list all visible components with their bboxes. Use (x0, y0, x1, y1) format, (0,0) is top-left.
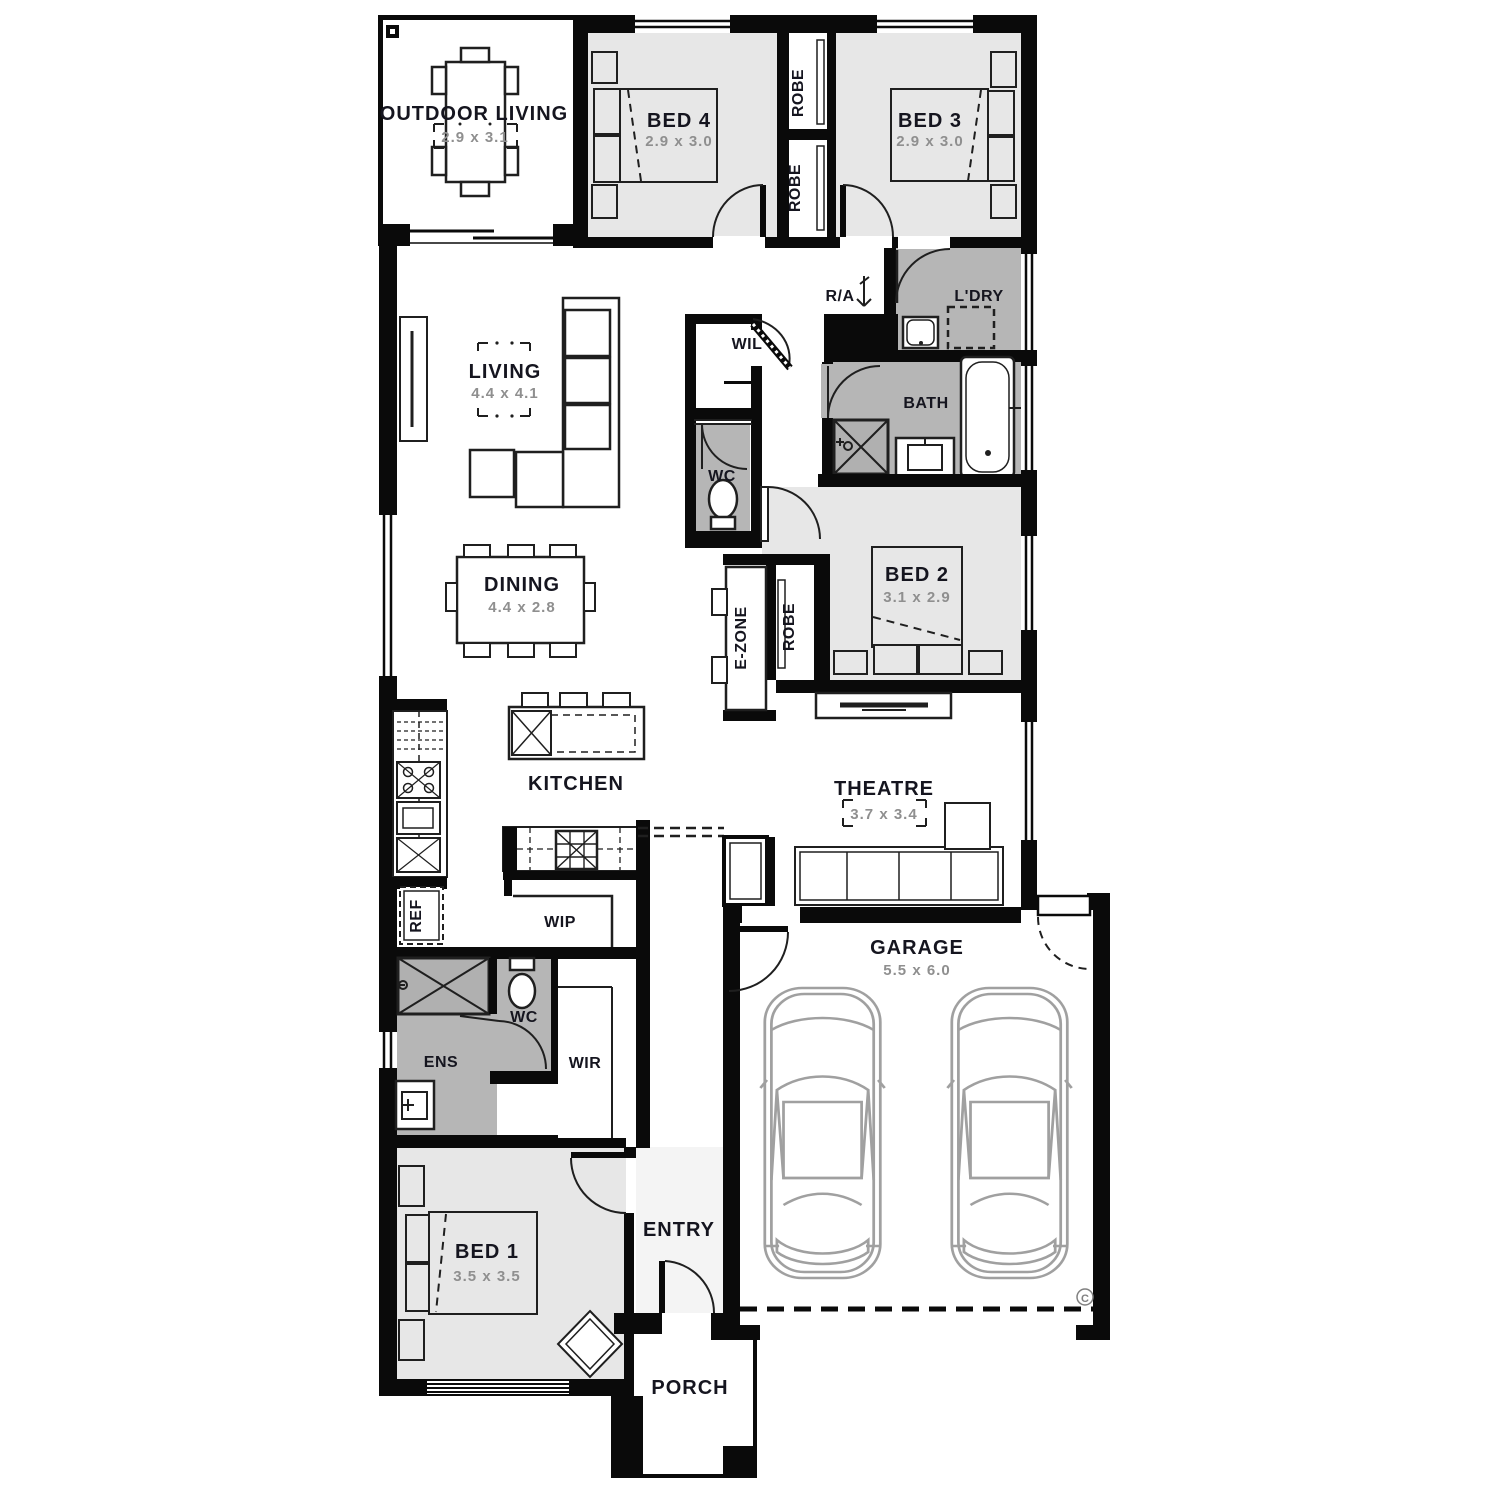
svg-text:WIR: WIR (569, 1055, 602, 1072)
svg-text:BED 3: BED 3 (898, 110, 962, 132)
svg-text:3.1 x 2.9: 3.1 x 2.9 (883, 589, 950, 606)
svg-text:ROBE: ROBE (787, 164, 804, 212)
svg-text:THEATRE: THEATRE (834, 778, 934, 800)
svg-text:C: C (1081, 1293, 1089, 1305)
svg-text:4.4 x 2.8: 4.4 x 2.8 (488, 599, 555, 616)
svg-text:BED 1: BED 1 (455, 1241, 519, 1263)
svg-text:2.9 x 3.0: 2.9 x 3.0 (896, 133, 963, 150)
svg-text:2.9 x 3.1: 2.9 x 3.1 (441, 129, 508, 146)
svg-text:E-ZONE: E-ZONE (733, 606, 750, 669)
svg-text:L'DRY: L'DRY (954, 288, 1003, 305)
svg-text:5.5 x 6.0: 5.5 x 6.0 (883, 962, 950, 979)
svg-text:WC: WC (510, 1009, 538, 1026)
svg-text:ENTRY: ENTRY (643, 1219, 715, 1241)
svg-text:4.4 x 4.1: 4.4 x 4.1 (471, 385, 538, 402)
svg-text:LIVING: LIVING (469, 361, 542, 383)
svg-text:2.9 x 3.0: 2.9 x 3.0 (645, 133, 712, 150)
svg-text:WC: WC (708, 468, 736, 485)
svg-text:OUTDOOR LIVING: OUTDOOR LIVING (380, 103, 568, 125)
svg-text:DINING: DINING (484, 574, 560, 596)
svg-text:3.7 x 3.4: 3.7 x 3.4 (850, 806, 917, 823)
svg-text:BED 4: BED 4 (647, 110, 711, 132)
svg-text:ROBE: ROBE (790, 69, 807, 117)
svg-text:ROBE: ROBE (781, 603, 798, 651)
svg-text:GARAGE: GARAGE (870, 937, 964, 959)
svg-text:KITCHEN: KITCHEN (528, 773, 624, 795)
svg-text:3.5 x 3.5: 3.5 x 3.5 (453, 1268, 520, 1285)
svg-text:BED 2: BED 2 (885, 564, 949, 586)
svg-text:PORCH: PORCH (651, 1377, 728, 1399)
svg-text:WIP: WIP (544, 914, 576, 931)
svg-text:WIL: WIL (732, 336, 763, 353)
svg-text:BATH: BATH (903, 395, 948, 412)
svg-text:R/A: R/A (825, 288, 854, 305)
svg-text:ENS: ENS (424, 1054, 458, 1071)
svg-text:REF: REF (408, 899, 425, 933)
